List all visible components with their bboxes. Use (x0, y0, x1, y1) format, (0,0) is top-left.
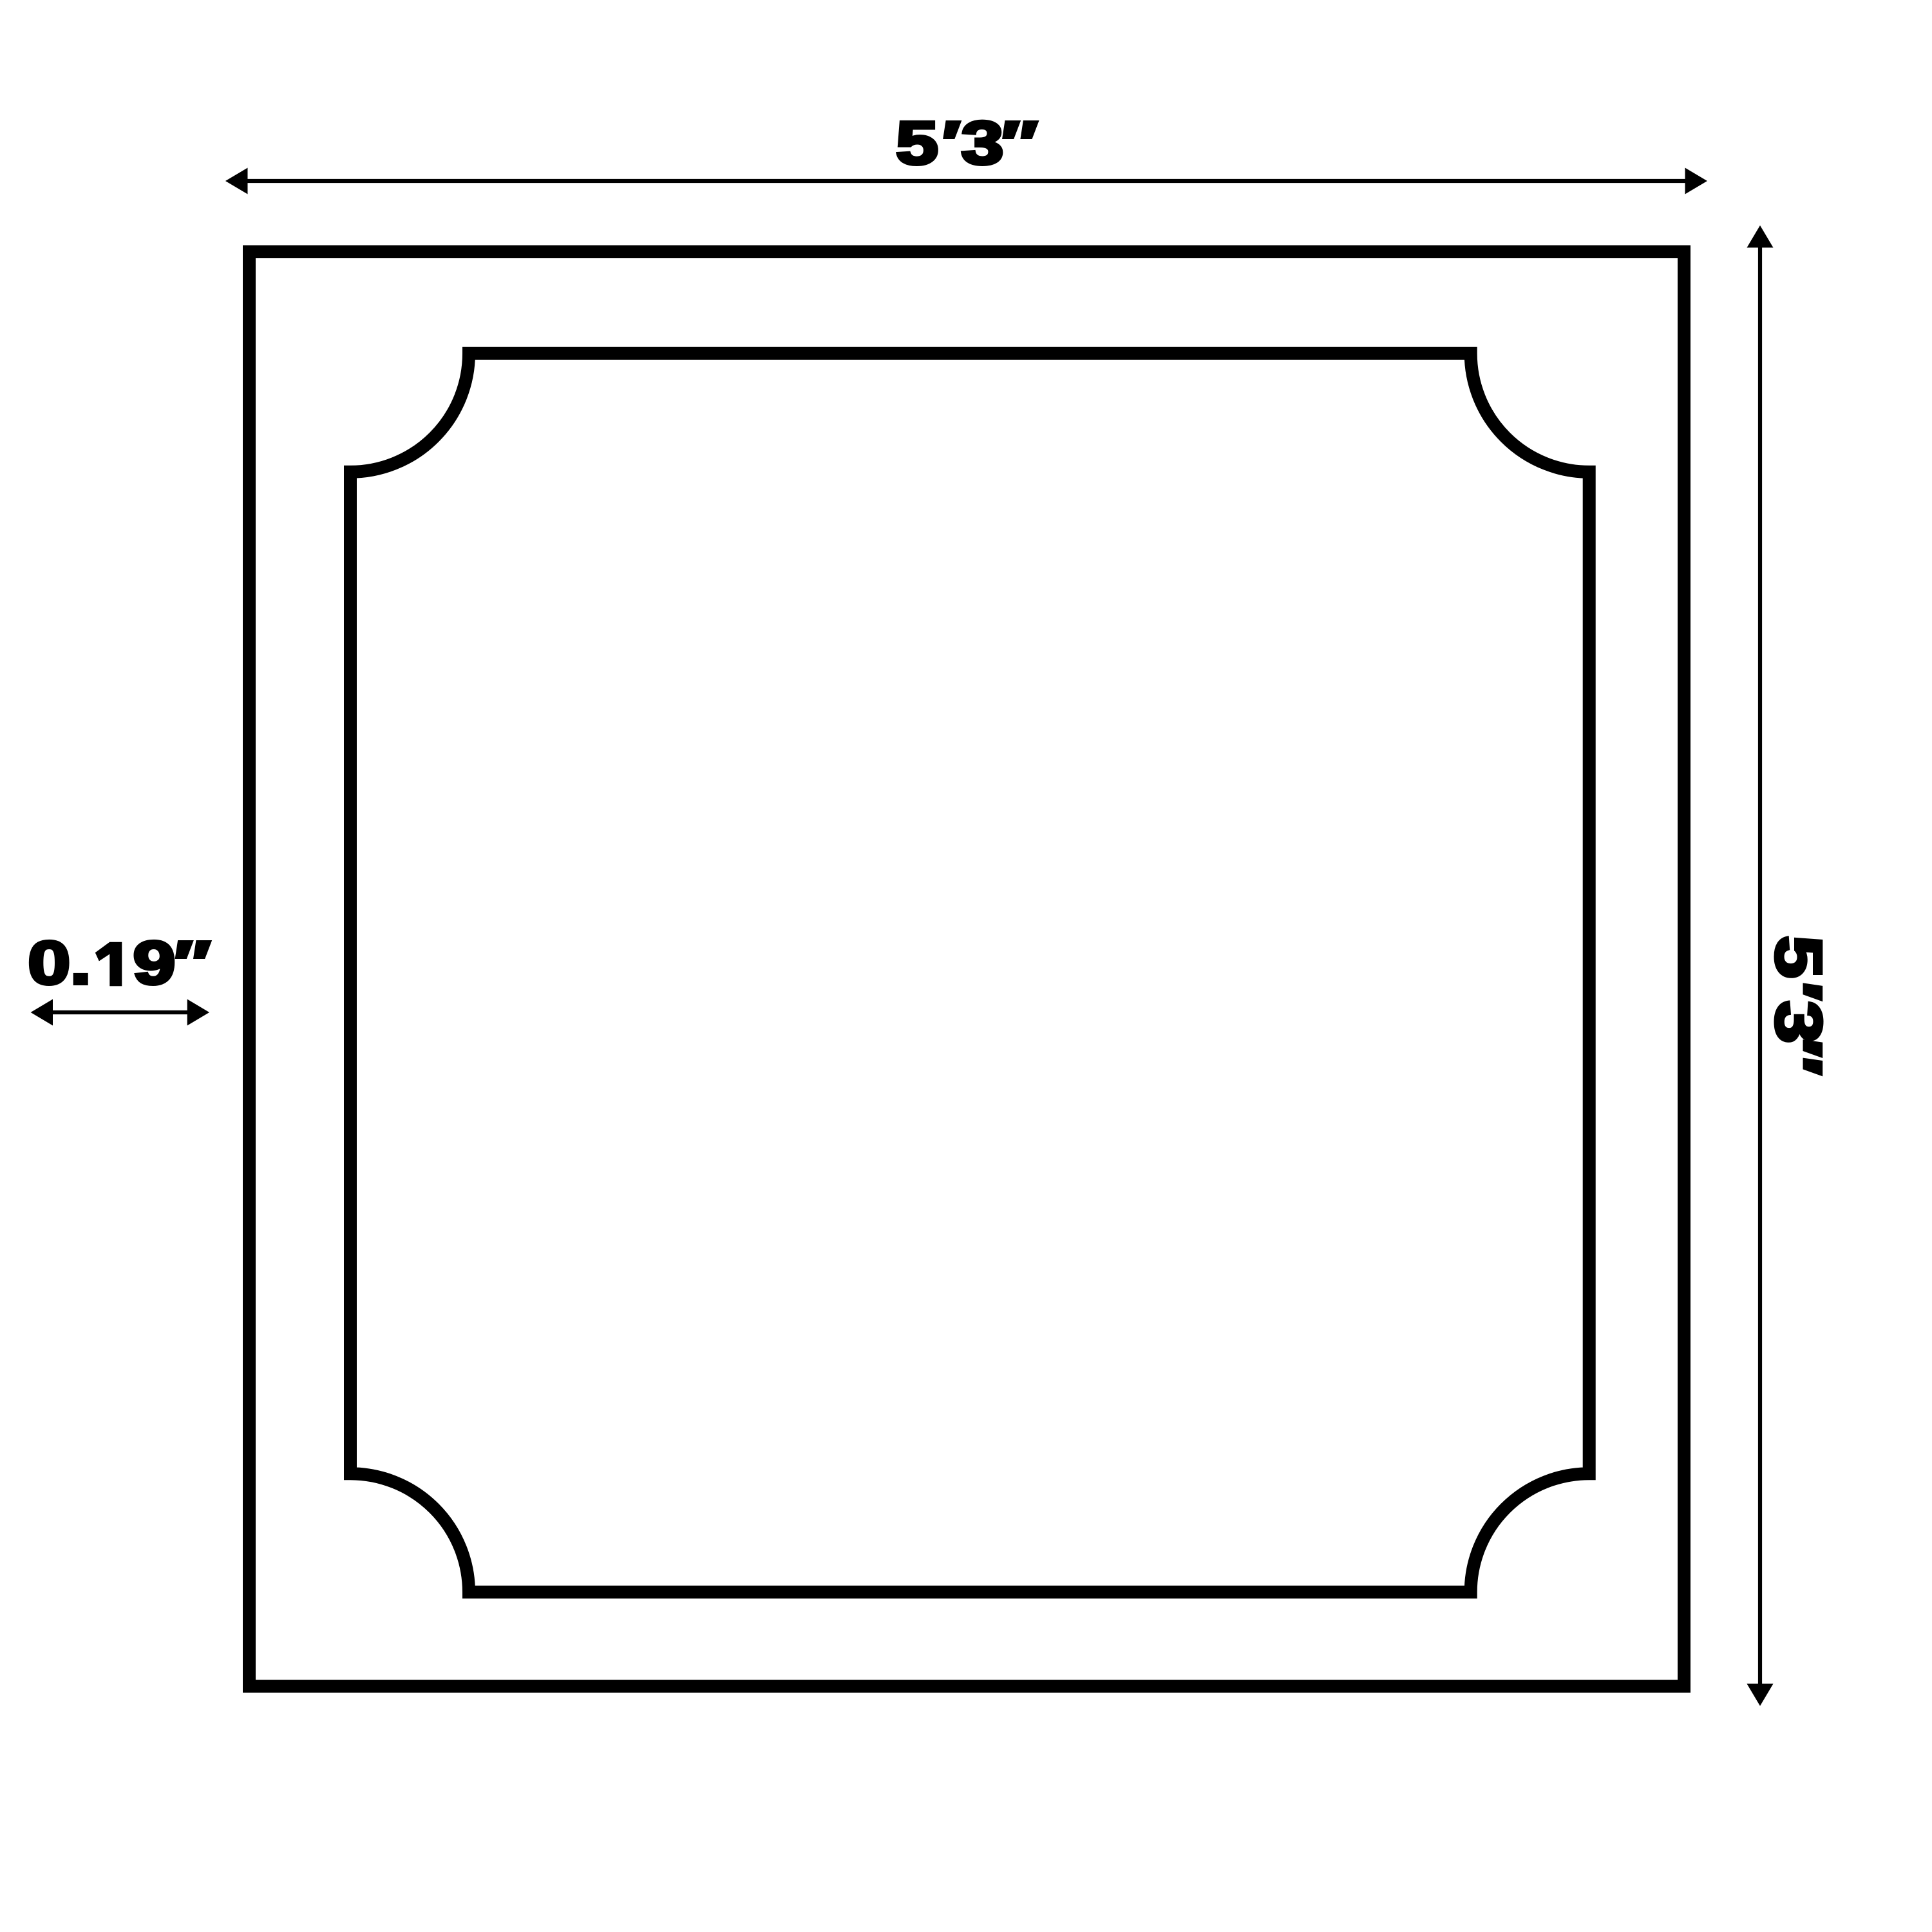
svg-text:5: 5 (1762, 936, 1834, 978)
svg-text:0: 0 (28, 929, 70, 997)
svg-text:″: ″ (1001, 109, 1038, 177)
svg-text:′: ′ (942, 109, 960, 177)
svg-text:5: 5 (896, 109, 938, 177)
svg-text:.: . (70, 929, 91, 997)
svg-text:″: ″ (1762, 1038, 1834, 1075)
svg-text:″: ″ (174, 929, 211, 997)
svg-text:3: 3 (1762, 1001, 1834, 1043)
svg-text:9: 9 (133, 929, 175, 997)
svg-text:′: ′ (1762, 982, 1834, 1001)
svg-text:3: 3 (961, 109, 1003, 177)
